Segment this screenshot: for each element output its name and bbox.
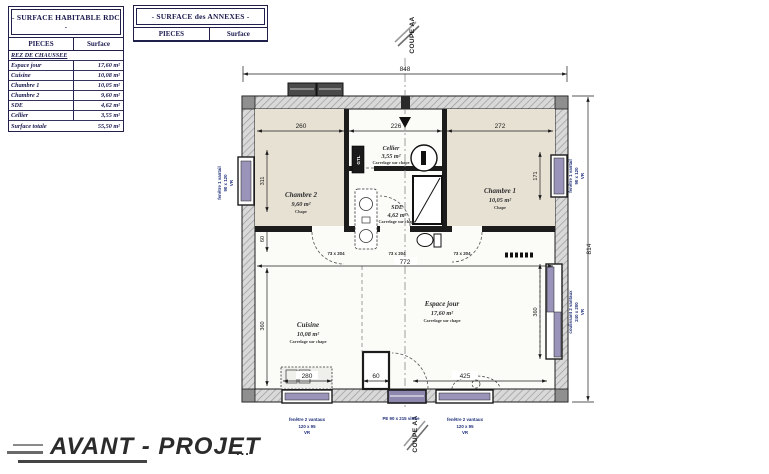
dim-chambre2-width: 260 (296, 123, 307, 130)
opening-text: VR (229, 179, 234, 186)
room-area: 4,62 m² (386, 212, 406, 219)
dim-left-offset: 60 (260, 236, 266, 242)
window-left (238, 157, 254, 205)
dim-stub-width: 60 (372, 373, 380, 380)
coupe-aa-top-label: COUPE AA (409, 16, 416, 53)
room-name: Cuisine (297, 321, 319, 329)
dim-total-width: 848 (400, 66, 411, 73)
opening-label-window-bottom-left: fenêtre 2 vantaux 120 x 95 VR (289, 417, 326, 435)
opening-text: 120 x 95 (298, 424, 316, 429)
drawing-sheet: - SURFACE HABITABLE RDC - PIECES Surface… (0, 0, 769, 474)
dim-kitchen-counter: 280 (302, 373, 313, 380)
dim-total-height: 814 (586, 243, 593, 254)
wall-corner-post (555, 389, 568, 402)
room-name: Chambre 1 (484, 187, 516, 195)
door-size-label: 73 x 204 (453, 251, 471, 256)
dim-window-left-height: 311 (260, 177, 266, 186)
wall-corner-post (555, 96, 568, 109)
dim-chambre1-width: 272 (495, 123, 506, 130)
opening-text: fenêtre 2 vantaux (447, 417, 484, 422)
room-area: 3,55 m² (380, 153, 400, 160)
project-title-dots: ... (236, 443, 250, 458)
gtl-label: GTL (356, 155, 361, 164)
room-name: Chambre 2 (285, 191, 318, 199)
opening-text: coulissant 2 vantaux (568, 290, 573, 334)
room-area: 9,60 m² (291, 201, 310, 208)
floor-plan-drawing: COUPE AA COUPE AA (0, 0, 769, 474)
dim-espace-jour-width: 425 (460, 373, 471, 380)
opening-text: fenêtre 1 vantail (217, 166, 222, 199)
wall-corner-post (242, 96, 255, 109)
room-floor: Carrelage sur chape (378, 219, 415, 224)
opening-text: fenêtre 1 vantail (568, 159, 573, 192)
room-floor: Carrelage sur chape (423, 318, 460, 323)
room-area: 10,05 m² (489, 197, 511, 204)
room-area: 17,60 m² (431, 310, 453, 317)
entry-door (388, 390, 426, 403)
dim-bay-height: 360 (533, 307, 539, 316)
kitchen-stub-wall (363, 352, 389, 389)
opening-text: VR (580, 172, 585, 179)
room-name: Cellier (383, 146, 400, 152)
door-size-label: 73 x 204 (327, 251, 345, 256)
room-name: Espace jour (424, 300, 460, 308)
dim-cuisine-depth: 360 (260, 321, 266, 330)
opening-text: VR (580, 308, 585, 315)
opening-label-bay: coulissant 2 vantaux 240 x 200 VR (568, 290, 585, 334)
opening-label-window-right: fenêtre 1 vantail 90 x 120 VR (568, 159, 585, 192)
opening-label-window-bottom-right: fenêtre 2 vantaux 120 x 95 VR (447, 417, 484, 435)
window-bottom-left (282, 390, 332, 403)
opening-text: 120 x 95 (456, 424, 474, 429)
opening-text: 90 x 120 (223, 174, 228, 192)
dim-middle-width: 226 (391, 123, 402, 130)
vanity-basin (355, 189, 377, 249)
door-size-label: 73 x 204 (388, 251, 406, 256)
room-floor: Chape (494, 205, 506, 210)
window-right (551, 155, 567, 197)
entry-door-label: PE 90 x 215 vitrée (382, 416, 420, 421)
room-name: SDE (391, 205, 403, 211)
footer-rule-top (13, 444, 43, 446)
opening-text: fenêtre 2 vantaux (289, 417, 326, 422)
window-bottom-right (436, 390, 493, 403)
shower (413, 176, 442, 224)
water-heater (411, 145, 437, 171)
heat-pump-units (288, 83, 343, 96)
room-floor: Chape (295, 209, 307, 214)
opening-label-window-left: fenêtre 1 vantail 90 x 120 VR (217, 166, 234, 199)
wc-toilet (417, 234, 441, 248)
room-area: 10,08 m² (297, 331, 319, 338)
project-title: AVANT - PROJET (50, 433, 260, 461)
room-floor: Carrelage sur chape (372, 160, 409, 165)
opening-text: VR (304, 430, 311, 435)
opening-text: VR (462, 430, 469, 435)
opening-text: 240 x 200 (574, 302, 579, 322)
dim-window-right-height: 171 (533, 171, 539, 180)
footer-rule-mid (7, 451, 43, 454)
room-floor: Carrelage sur chape (289, 339, 326, 344)
opening-text: 90 x 120 (574, 167, 579, 185)
dim-interior-width: 772 (400, 259, 411, 266)
wall-corner-post (242, 389, 255, 402)
